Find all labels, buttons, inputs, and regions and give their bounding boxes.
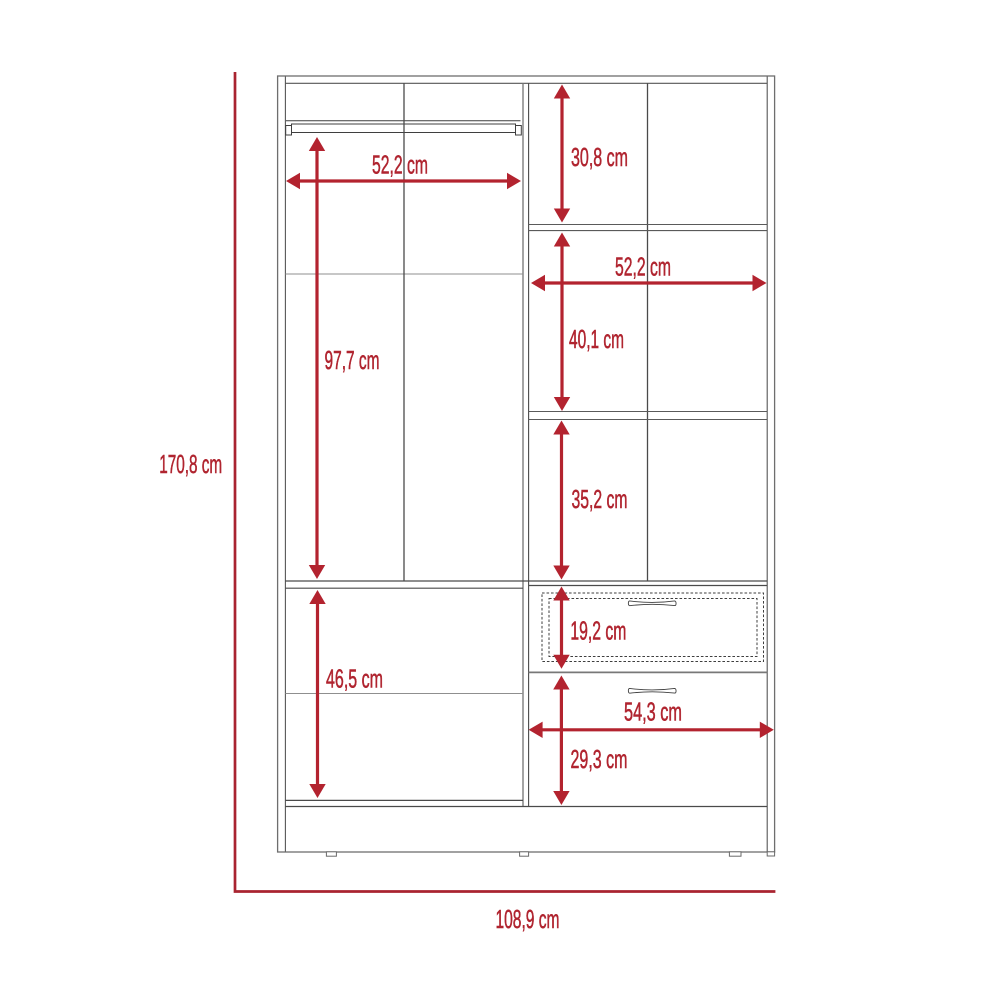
- svg-text:54,3 cm: 54,3 cm: [624, 697, 682, 727]
- svg-text:35,2 cm: 35,2 cm: [572, 484, 628, 514]
- svg-text:52,2 cm: 52,2 cm: [372, 150, 428, 180]
- svg-text:52,2 cm: 52,2 cm: [615, 252, 671, 282]
- svg-text:29,3 cm: 29,3 cm: [571, 744, 628, 774]
- svg-text:30,8 cm: 30,8 cm: [571, 142, 628, 172]
- svg-text:40,1 cm: 40,1 cm: [569, 324, 624, 354]
- svg-text:170,8 cm: 170,8 cm: [159, 449, 222, 479]
- svg-text:46,5 cm: 46,5 cm: [326, 664, 383, 694]
- svg-text:108,9 cm: 108,9 cm: [496, 904, 560, 934]
- svg-text:19,2 cm: 19,2 cm: [570, 616, 626, 646]
- svg-text:97,7 cm: 97,7 cm: [325, 345, 380, 375]
